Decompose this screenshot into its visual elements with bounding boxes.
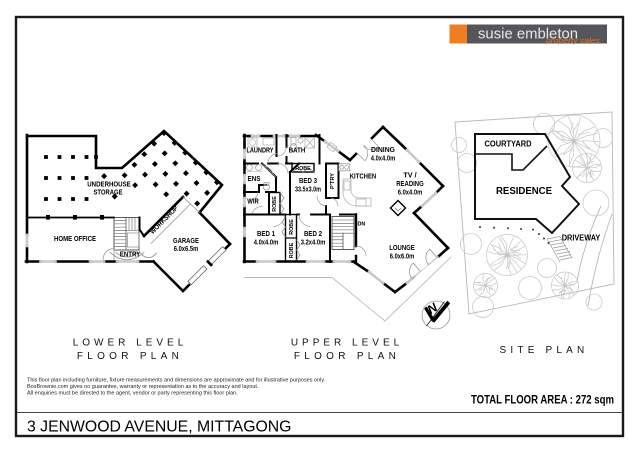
svg-text:BoxBrownie.com gives no guaran: BoxBrownie.com gives no guarantee, warra… — [27, 384, 259, 390]
svg-text:FLOOR PLAN: FLOOR PLAN — [77, 351, 183, 362]
svg-text:All enquiries must be directed: All enquiries must be directed to the ag… — [27, 391, 238, 397]
svg-text:ENS: ENS — [248, 174, 261, 183]
svg-text:6.0x6.5m: 6.0x6.5m — [174, 246, 199, 253]
svg-text:BED 3: BED 3 — [299, 176, 317, 185]
svg-text:LOWER LEVEL: LOWER LEVEL — [73, 338, 188, 349]
svg-text:COURTYARD: COURTYARD — [485, 140, 532, 149]
svg-text:33.5x3.0m: 33.5x3.0m — [295, 187, 321, 194]
svg-text:RESIDENCE: RESIDENCE — [496, 185, 552, 197]
svg-text:4.0x4.0m: 4.0x4.0m — [371, 156, 396, 163]
svg-text:DRIVEWAY: DRIVEWAY — [562, 234, 601, 243]
svg-text:KITCHEN: KITCHEN — [350, 172, 377, 181]
svg-text:BED 1: BED 1 — [257, 229, 275, 238]
svg-text:FLOOR PLAN: FLOOR PLAN — [294, 351, 400, 362]
svg-text:STORAGE: STORAGE — [94, 188, 123, 197]
svg-text:property sales: property sales — [545, 36, 601, 45]
svg-text:6.0x4.0m: 6.0x4.0m — [398, 190, 423, 197]
svg-text:ROBE: ROBE — [289, 219, 295, 235]
svg-text:6.0x6.0m: 6.0x6.0m — [390, 254, 415, 261]
svg-text:WIR: WIR — [247, 197, 259, 206]
svg-text:DINING: DINING — [371, 145, 395, 154]
svg-text:BATH: BATH — [289, 146, 306, 155]
svg-text:GARAGE: GARAGE — [173, 236, 199, 245]
svg-text:3.2x4.0m: 3.2x4.0m — [301, 240, 326, 247]
svg-text:ROBE: ROBE — [289, 242, 295, 258]
svg-text:HOME OFFICE: HOME OFFICE — [54, 234, 96, 243]
svg-text:DN: DN — [358, 222, 366, 228]
svg-text:ROBE: ROBE — [272, 196, 278, 212]
svg-text:ROBE: ROBE — [295, 166, 311, 172]
svg-text:BED 2: BED 2 — [304, 229, 322, 238]
svg-text:This floor plan including furn: This floor plan including furniture, fix… — [27, 378, 326, 384]
svg-text:LAUNDRY: LAUNDRY — [247, 146, 274, 155]
svg-text:READING: READING — [396, 179, 424, 188]
svg-text:4.0x4.0m: 4.0x4.0m — [254, 240, 279, 247]
svg-text:LOUNGE: LOUNGE — [389, 243, 415, 252]
svg-text:3 JENWOOD AVENUE, MITTAGONG: 3 JENWOOD AVENUE, MITTAGONG — [27, 419, 291, 436]
svg-text:SITE PLAN: SITE PLAN — [500, 345, 589, 356]
svg-text:TOTAL FLOOR AREA : 272 sqm: TOTAL FLOOR AREA : 272 sqm — [471, 394, 614, 407]
svg-text:ENTRY: ENTRY — [120, 250, 141, 259]
svg-text:UPPER LEVEL: UPPER LEVEL — [291, 338, 403, 349]
svg-text:P'TRY: P'TRY — [330, 172, 336, 189]
